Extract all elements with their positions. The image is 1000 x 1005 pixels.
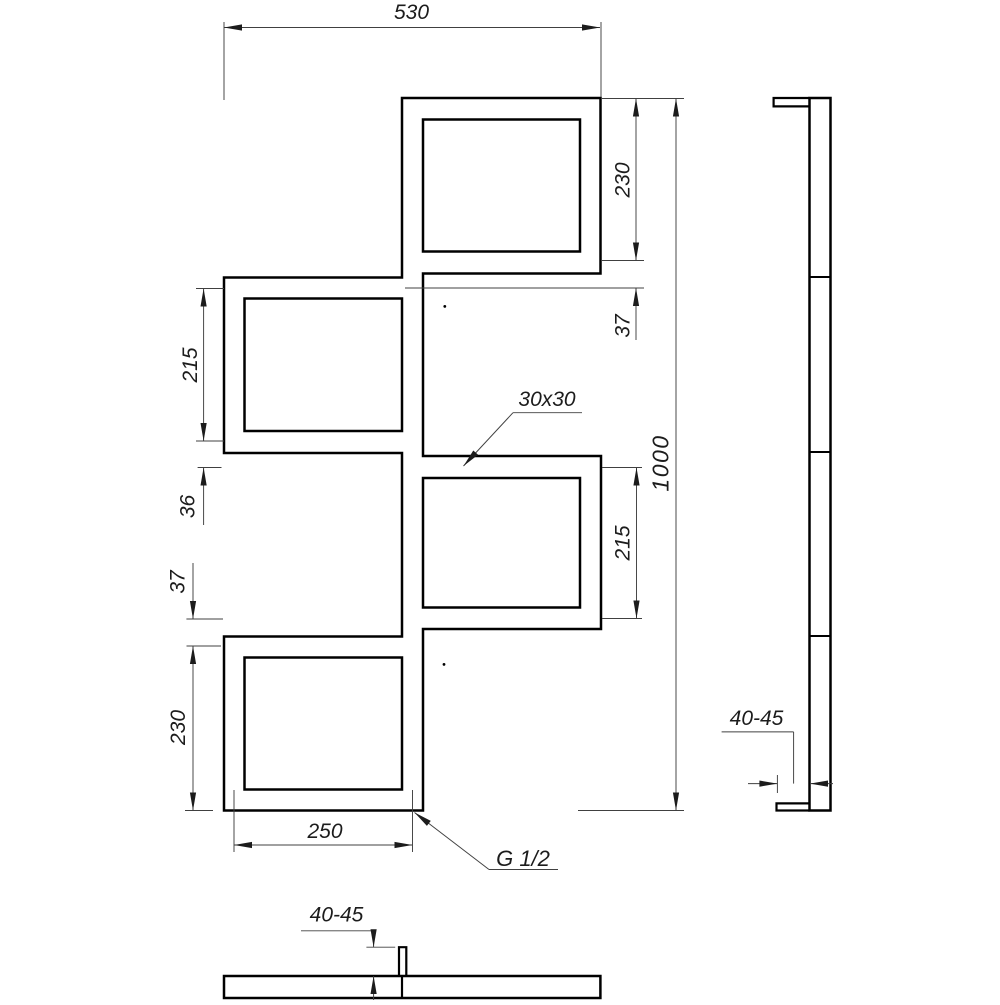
svg-text:215: 215 [612, 525, 635, 561]
svg-text:37: 37 [167, 569, 190, 594]
svg-text:230: 230 [612, 162, 635, 198]
svg-text:37: 37 [612, 313, 635, 338]
svg-text:530: 530 [394, 1, 429, 24]
svg-text:G 1/2: G 1/2 [496, 846, 550, 871]
svg-text:230: 230 [167, 710, 190, 746]
svg-text:40-45: 40-45 [310, 904, 364, 927]
svg-text:1000: 1000 [648, 434, 674, 491]
svg-text:40-45: 40-45 [730, 707, 784, 730]
svg-text:36: 36 [177, 495, 200, 519]
svg-text:30x30: 30x30 [518, 388, 576, 411]
svg-text:215: 215 [179, 347, 202, 383]
svg-text:250: 250 [306, 820, 342, 843]
